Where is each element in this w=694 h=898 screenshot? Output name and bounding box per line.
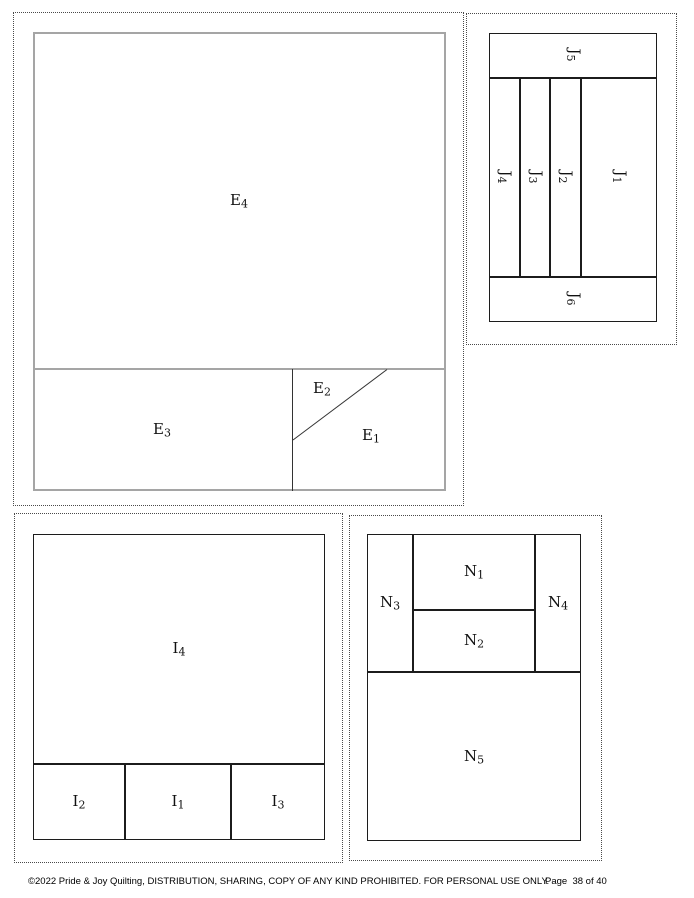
piece-label-i4: I4 (173, 641, 186, 658)
piece-label-e2: E2 (313, 381, 331, 398)
template-i-column-divider-2 (230, 764, 232, 840)
piece-label-n3: N3 (380, 595, 400, 612)
label-base: N (548, 593, 561, 611)
label-base: N (464, 747, 477, 765)
piece-label-j3: J3 (527, 170, 544, 183)
template-n-left-column-divider (412, 534, 414, 672)
label-subscript: 3 (164, 426, 171, 439)
label-subscript: 2 (78, 798, 85, 811)
label-base: E (313, 379, 324, 397)
footer-copyright-text: ©2022 Pride & Joy Quilting, DISTRIBUTION… (28, 876, 549, 887)
footer-page-number: Page 38 of 40 (545, 876, 607, 887)
piece-label-n5: N5 (464, 749, 484, 766)
template-j-top-strip-divider (489, 77, 657, 79)
piece-label-j4: J4 (496, 170, 513, 183)
piece-label-j2: J2 (557, 170, 574, 183)
label-base: E (230, 191, 241, 209)
template-j-column-divider-3 (580, 78, 582, 276)
label-subscript: 5 (477, 753, 484, 766)
piece-label-i1: I1 (172, 794, 185, 811)
piece-label-i2: I2 (73, 794, 86, 811)
piece-label-j1: J1 (611, 170, 628, 183)
template-n-right-column-divider (534, 534, 536, 672)
piece-label-e3: E3 (153, 422, 171, 439)
label-subscript: 4 (178, 645, 185, 658)
piece-label-j6: J6 (565, 292, 582, 305)
label-subscript: 3 (526, 177, 539, 184)
template-j-column-divider-2 (549, 78, 551, 276)
label-base: E (362, 426, 373, 444)
piece-label-n4: N4 (548, 595, 568, 612)
template-j-column-divider-1 (519, 78, 521, 276)
label-subscript: 1 (610, 177, 623, 184)
label-subscript: 2 (324, 385, 331, 398)
piece-label-j5: J5 (565, 48, 582, 61)
piece-label-e4: E4 (230, 193, 248, 210)
piece-label-i3: I3 (272, 794, 285, 811)
label-subscript: 6 (564, 299, 577, 306)
label-subscript: 4 (241, 197, 248, 210)
piece-label-n1: N1 (464, 564, 484, 581)
label-base: N (464, 631, 477, 649)
template-i-horizontal-divider (33, 763, 325, 765)
label-base: N (380, 593, 393, 611)
label-base: N (464, 562, 477, 580)
template-n-horizontal-divider (367, 671, 581, 673)
label-subscript: 2 (556, 177, 569, 184)
label-subscript: 2 (477, 637, 484, 650)
label-subscript: 5 (564, 55, 577, 62)
label-subscript: 3 (393, 599, 400, 612)
piece-label-n2: N2 (464, 633, 484, 650)
label-base: E (153, 420, 164, 438)
template-n-middle-divider (413, 609, 535, 611)
template-i-column-divider-1 (124, 764, 126, 840)
label-subscript: 4 (495, 177, 508, 184)
label-subscript: 1 (477, 568, 484, 581)
label-subscript: 4 (561, 599, 568, 612)
label-subscript: 3 (277, 798, 284, 811)
label-subscript: 1 (373, 432, 380, 445)
piece-label-e1: E1 (362, 428, 380, 445)
template-j-bottom-strip-divider (489, 276, 657, 278)
label-subscript: 1 (177, 798, 184, 811)
